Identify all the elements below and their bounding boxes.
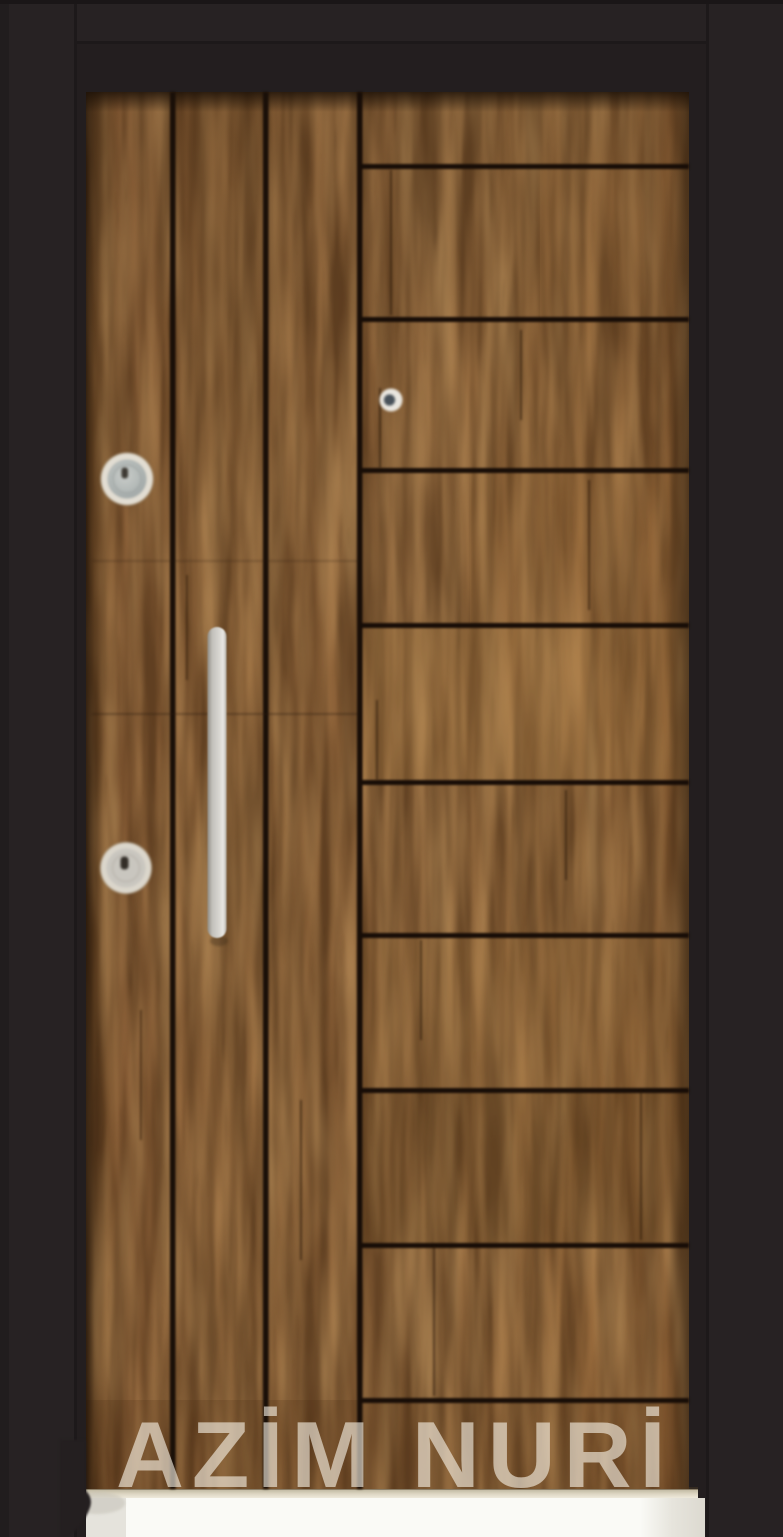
- svg-text:AZİM NURİ: AZİM NURİ: [116, 1402, 674, 1507]
